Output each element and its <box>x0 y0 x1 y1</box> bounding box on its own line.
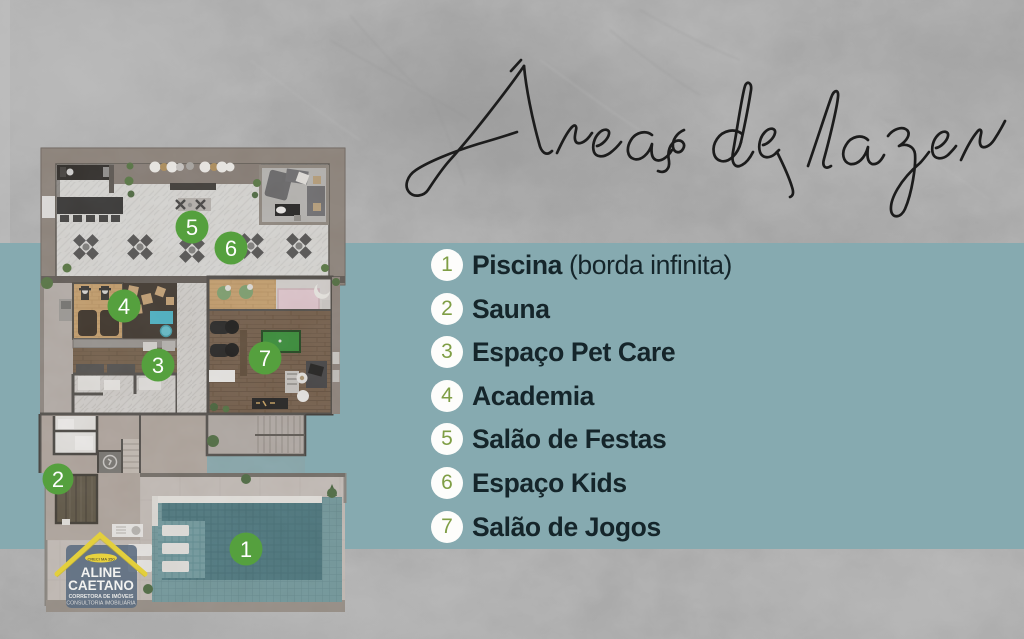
svg-text:2: 2 <box>52 467 64 492</box>
svg-text:CORRETORA DE IMÓVEIS: CORRETORA DE IMÓVEIS <box>69 592 134 600</box>
svg-text:3: 3 <box>152 353 164 378</box>
svg-text:CAETANO: CAETANO <box>68 578 134 593</box>
svg-text:CONSULTORIA IMOBILIÁRIA: CONSULTORIA IMOBILIÁRIA <box>66 600 136 607</box>
svg-text:CRECI MA 350: CRECI MA 350 <box>87 557 115 562</box>
svg-text:1: 1 <box>240 537 252 562</box>
svg-text:6: 6 <box>225 236 237 261</box>
svg-text:4: 4 <box>118 294 130 319</box>
svg-text:5: 5 <box>186 215 198 240</box>
svg-text:7: 7 <box>259 346 271 371</box>
